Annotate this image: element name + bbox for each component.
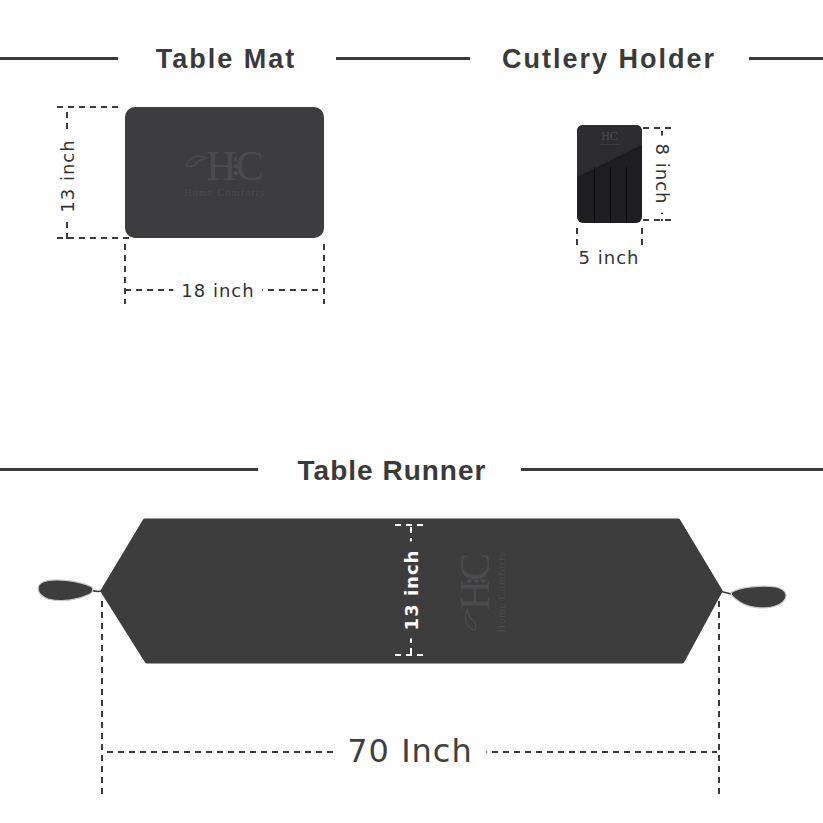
brand-initials: HC: [577, 130, 642, 145]
header-divider: [521, 468, 823, 471]
runner-width-label: 70 Inch: [333, 732, 486, 770]
tassel-right: [731, 586, 786, 608]
brand-monogram: H ◆◆◆ C: [456, 552, 494, 633]
mat-width-extension-right: [323, 244, 325, 304]
runner-height-label: 13 inch: [401, 542, 422, 639]
mat-width-label: 18 inch: [173, 280, 262, 301]
holder-width-label: 5 inch: [571, 247, 648, 268]
brand-logo-rotated: H ◆◆◆ C Home Comforts: [456, 552, 508, 633]
header-divider: [0, 57, 118, 60]
pocket-seam: [610, 167, 611, 223]
tassel-left: [38, 580, 92, 601]
brand-name: Home Comforts: [184, 188, 265, 199]
ornament-icon: ◆◆◆: [232, 155, 241, 176]
mat-width-extension-left: [124, 244, 126, 304]
ornament-icon: ◆◆◆: [465, 576, 486, 585]
runner-width-extension-left: [101, 601, 103, 795]
brand-logo: H ◆◆◆ C Home Comforts: [184, 147, 265, 199]
brand-initials-text: HC: [601, 129, 618, 143]
antler-flourish-icon: [462, 607, 480, 631]
table-runner-title: Table Runner: [267, 455, 517, 487]
header-divider: [336, 57, 470, 60]
header-divider: [749, 57, 823, 60]
brand-name: Home Comforts: [497, 552, 508, 633]
table-mat-title: Table Mat: [126, 44, 326, 75]
product-dimensions-infographic: Table Mat Cutlery Holder H ◆◆◆ C Home Co…: [0, 0, 823, 823]
holder-height-extension-top: [643, 127, 673, 129]
mat-height-label: 13 inch: [57, 131, 78, 220]
brand-underline: [600, 144, 620, 145]
holder-height-label: 8 inch: [652, 136, 673, 213]
pocket-seam: [594, 167, 595, 223]
header-divider: [0, 468, 258, 471]
mat-height-extension-top: [57, 106, 123, 108]
holder-height-extension-bottom: [643, 219, 673, 221]
pocket-seam: [626, 167, 627, 223]
table-mat-graphic: H ◆◆◆ C Home Comforts: [125, 107, 324, 238]
cutlery-holder-title: Cutlery Holder: [478, 44, 740, 75]
brand-logo: H ◆◆◆ C Home Comforts: [456, 552, 508, 633]
brand-monogram: H ◆◆◆ C: [184, 147, 265, 185]
cutlery-holder-graphic: HC: [577, 125, 642, 223]
runner-height-extension-top: [395, 524, 428, 526]
runner-width-extension-right: [718, 601, 720, 795]
